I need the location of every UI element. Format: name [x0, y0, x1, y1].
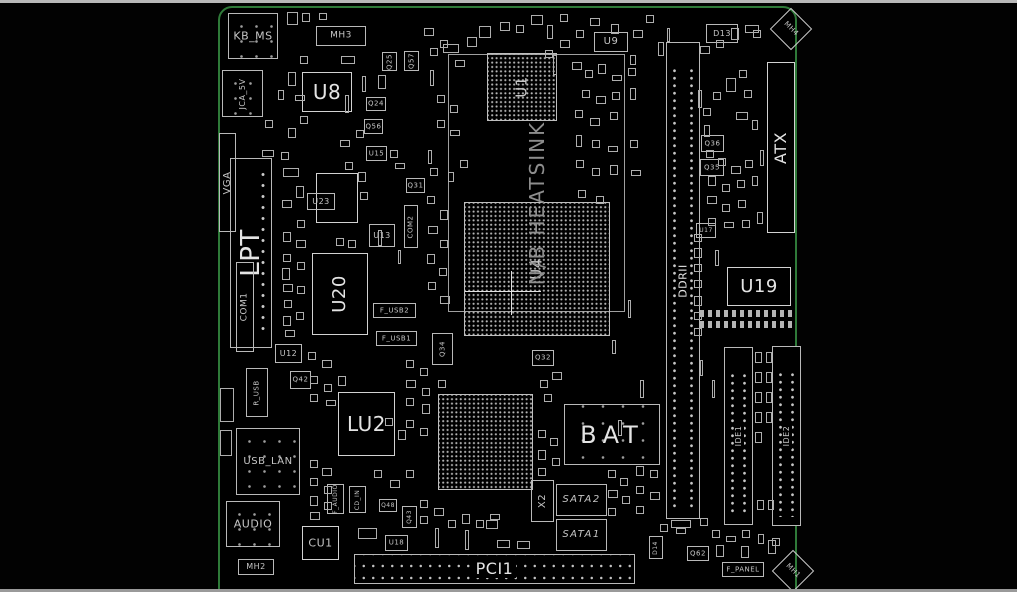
smd-part — [739, 70, 747, 78]
smd-part — [282, 268, 290, 280]
smd-part — [324, 486, 332, 494]
smd-part — [742, 530, 750, 538]
sata2-connector-label: SATA2 — [562, 495, 600, 505]
smd-part — [336, 238, 344, 246]
smd-part — [310, 394, 318, 402]
f-usb1-header: F_USB1 — [376, 331, 417, 346]
atx-connector: ATX — [767, 62, 795, 233]
smd-part — [742, 220, 750, 228]
smd-part — [708, 218, 716, 226]
smd-part — [612, 75, 622, 81]
smd-part — [517, 541, 530, 549]
smd-part — [712, 530, 720, 538]
smd-part — [406, 420, 414, 428]
smd-part — [724, 222, 734, 228]
smd-part — [448, 172, 454, 182]
smd-part — [707, 196, 717, 204]
smd-part — [322, 360, 332, 368]
jca-5v-connector: JCA_5V — [222, 70, 263, 117]
smd-part — [262, 150, 274, 157]
smd-part — [430, 70, 434, 86]
smd-part — [398, 430, 406, 440]
lan-bga — [438, 394, 533, 490]
smd-part — [612, 340, 616, 354]
smd-part — [766, 352, 772, 363]
smd-part — [467, 37, 477, 47]
smd-part — [378, 75, 386, 89]
smd-part — [582, 90, 590, 98]
com2-header-label: COM2 — [408, 215, 415, 238]
smd-part — [726, 536, 736, 542]
smd-part — [300, 116, 308, 124]
q48-label: Q48 — [381, 503, 395, 509]
smd-part — [345, 95, 349, 113]
smd-part — [636, 466, 644, 476]
d14-label: D14 — [653, 541, 659, 555]
smd-part — [385, 418, 393, 426]
smd-part — [427, 254, 435, 264]
smd-part — [628, 300, 631, 318]
smd-part — [296, 186, 304, 198]
smd-part — [700, 46, 710, 54]
smd-part — [439, 268, 447, 276]
f-usb1-header-label: F_USB1 — [382, 335, 411, 342]
d14: D14 — [649, 536, 663, 559]
smd-part — [310, 376, 318, 384]
sata2-connector: SATA2 — [556, 484, 607, 516]
smd-part — [297, 220, 305, 228]
smd-part — [288, 72, 296, 86]
bat-battery-label: BAT — [580, 423, 644, 447]
smd-part — [592, 168, 600, 176]
smd-part — [610, 165, 618, 175]
smd-part — [360, 192, 368, 200]
cu1-chip-label: CU1 — [308, 538, 332, 549]
smd-part — [300, 56, 308, 64]
smd-part — [324, 502, 332, 510]
mh4-mount-label: MH4 — [782, 20, 799, 37]
smd-part — [744, 90, 752, 98]
audio-connector: AUDIO — [226, 501, 280, 547]
smd-part — [296, 240, 306, 248]
smd-part — [590, 18, 600, 26]
q25-label: Q25 — [386, 54, 393, 70]
smd-part — [758, 534, 764, 544]
smd-part — [285, 330, 295, 337]
smd-part — [406, 470, 414, 478]
smd-part — [398, 250, 401, 264]
com1-connector: COM1 — [236, 262, 254, 352]
smd-part — [766, 412, 772, 423]
nb-heatsink-watermark-label: N/B HEATSINK — [527, 120, 547, 284]
smd-part — [297, 262, 305, 270]
smd-part — [395, 163, 405, 169]
smd-part — [287, 12, 298, 25]
smd-part — [712, 380, 715, 398]
smd-part — [538, 450, 546, 460]
u20-chip: U20 — [312, 253, 368, 335]
smd-part — [611, 24, 619, 34]
smd-part — [722, 184, 730, 192]
usb-lan-connector: USB_LAN — [236, 428, 300, 495]
smd-part — [755, 392, 762, 403]
pad-row — [700, 310, 793, 317]
ide1-connector-label: IDE1 — [734, 423, 744, 450]
smd-part — [406, 360, 414, 368]
smd-part — [694, 248, 702, 258]
smd-part — [738, 200, 746, 208]
smd-part — [544, 394, 552, 402]
smd-part — [731, 28, 739, 40]
smd-part — [760, 150, 764, 166]
smd-part — [281, 152, 289, 160]
f-audio-header-label: F_AUDIO — [333, 484, 339, 514]
smd-part — [552, 372, 562, 380]
smd-part — [590, 118, 600, 126]
smd-part — [766, 372, 772, 383]
smd-part — [540, 380, 548, 388]
smd-part — [576, 135, 582, 147]
smd-part — [745, 160, 753, 168]
smd-part — [560, 40, 570, 48]
smd-part — [575, 110, 583, 118]
mh1-mount-label: MH1 — [784, 562, 801, 579]
smd-part — [390, 480, 400, 488]
smd-part — [448, 520, 456, 528]
smd-part — [694, 264, 702, 272]
smd-part — [640, 380, 644, 398]
smd-part — [667, 28, 670, 42]
smd-part — [736, 112, 748, 120]
u19-chip-label: U19 — [740, 278, 778, 296]
u18: U18 — [385, 535, 408, 551]
smd-part — [440, 40, 448, 48]
u18-label: U18 — [389, 540, 405, 547]
f-usb2-header-label: F_USB2 — [380, 307, 409, 314]
smd-part — [428, 226, 438, 234]
lu2-chip-label: LU2 — [347, 414, 386, 434]
q62-label: Q62 — [690, 550, 706, 557]
smd-part — [620, 478, 628, 486]
ide1-connector: IDE1 — [724, 347, 753, 525]
smd-part — [450, 105, 458, 113]
smd-part — [374, 470, 382, 478]
crosshair-line — [465, 291, 541, 292]
smd-part — [500, 22, 510, 31]
smd-part — [430, 168, 438, 176]
f-panel-header-label: F_PANEL — [726, 566, 759, 573]
smd-part — [731, 166, 741, 174]
u15: U15 — [366, 146, 387, 161]
smd-part — [440, 210, 448, 220]
smd-part — [706, 150, 714, 158]
smd-part — [608, 470, 616, 478]
smd-part — [660, 524, 668, 532]
u23: U23 — [307, 193, 335, 210]
smd-part — [630, 55, 636, 65]
smd-part — [694, 234, 702, 242]
smd-part — [768, 500, 774, 510]
q62: Q62 — [687, 546, 709, 561]
smd-part — [283, 168, 299, 177]
smd-part — [282, 200, 292, 208]
smd-part — [755, 352, 762, 363]
smd-part — [550, 438, 558, 446]
smd-part — [737, 180, 745, 188]
smd-part — [434, 508, 444, 516]
smd-part — [497, 540, 510, 548]
smd-part — [694, 296, 702, 306]
mh2-mount-label: MH2 — [246, 563, 266, 571]
smd-part — [362, 76, 366, 92]
u9-label: U9 — [604, 37, 619, 47]
q43-label: Q43 — [407, 510, 413, 524]
q24-label: Q24 — [368, 101, 384, 108]
smd-part — [297, 286, 305, 294]
q36-label: Q36 — [705, 140, 721, 147]
smd-part — [631, 170, 641, 176]
smd-part — [694, 328, 702, 336]
smd-part — [308, 352, 316, 360]
smd-part — [427, 196, 435, 204]
smd-part — [741, 546, 749, 558]
smd-part — [608, 146, 618, 152]
mh3-mount: MH3 — [316, 26, 366, 46]
q34: Q34 — [432, 333, 453, 365]
u23-label: U23 — [312, 198, 330, 206]
smd-part — [283, 232, 291, 242]
smd-part — [576, 30, 584, 38]
smd-part — [700, 518, 708, 526]
x2-header-label: X2 — [538, 494, 548, 508]
cd-in-header: CD_IN — [349, 486, 366, 513]
smd-part — [455, 60, 465, 67]
smd-part — [302, 13, 310, 22]
q34-label: Q34 — [439, 341, 446, 357]
u12: U12 — [275, 344, 302, 363]
nb-heatsink-watermark: N/B HEATSINK — [512, 95, 562, 310]
q31: Q31 — [406, 178, 425, 193]
smd-part — [768, 540, 776, 554]
mh2-mount: MH2 — [238, 559, 274, 575]
smd-part — [596, 196, 604, 204]
q24: Q24 — [366, 97, 386, 111]
smd-part — [278, 90, 284, 100]
smd-part — [578, 190, 586, 198]
smd-part — [630, 88, 636, 100]
smd-part — [755, 412, 762, 423]
smd-part — [516, 25, 524, 33]
smd-part — [753, 30, 761, 38]
smd-part — [622, 496, 630, 504]
smd-part — [420, 516, 428, 524]
smd-part — [288, 128, 296, 138]
smd-part — [553, 55, 557, 75]
q56: Q56 — [364, 119, 383, 134]
ddrii-slot-label: DDRII — [677, 261, 690, 301]
smd-part — [716, 40, 724, 48]
smd-part — [437, 95, 445, 103]
sata1-connector-label: SATA1 — [562, 530, 600, 540]
pad-row — [700, 321, 793, 328]
q48: Q48 — [379, 499, 397, 512]
f-usb2-header: F_USB2 — [373, 303, 416, 318]
smd-part — [722, 204, 730, 212]
smd-part — [592, 140, 600, 148]
cd-in-header-label: CD_IN — [355, 489, 361, 510]
smd-part — [676, 528, 686, 534]
smd-part — [576, 160, 584, 168]
d13-label: D13 — [713, 30, 731, 38]
com1-connector-label: COM1 — [241, 293, 250, 322]
smd-part — [585, 70, 593, 78]
smd-part — [486, 520, 498, 529]
smd-part — [358, 528, 377, 539]
smd-part — [757, 212, 763, 224]
smd-part — [650, 492, 660, 500]
smd-part — [422, 404, 430, 414]
smd-part — [340, 140, 350, 147]
smd-part — [476, 520, 484, 528]
r-usb-header-label: R_USB — [254, 380, 261, 405]
audio-connector-label: AUDIO — [234, 519, 272, 530]
smd-part — [479, 26, 491, 38]
smd-part — [704, 125, 710, 137]
pci1-slot-label: PCI1 — [473, 560, 517, 578]
smd-part — [283, 284, 293, 292]
smd-part — [322, 468, 332, 476]
smd-part — [572, 62, 582, 70]
smd-part — [435, 528, 439, 548]
boardview-diagram: KB_MSMH3JCA_5VU8Q25Q57Q24Q56U15Q31U23U13… — [0, 0, 1017, 592]
smd-part — [356, 130, 364, 138]
ide2-connector-label: IDE2 — [782, 423, 792, 450]
smd-part — [310, 460, 318, 468]
smd-part — [326, 400, 336, 406]
smd-part — [341, 56, 355, 64]
smd-part — [428, 282, 436, 290]
smd-part — [406, 380, 416, 388]
smd-part — [345, 162, 353, 170]
smd-part — [650, 470, 658, 478]
smd-part — [716, 545, 724, 557]
smd-part — [310, 478, 318, 486]
bat-battery: BAT — [564, 404, 660, 465]
u20-chip-label: U20 — [331, 275, 349, 313]
smd-part — [338, 376, 346, 386]
top-border-strip — [0, 0, 1017, 3]
smd-part — [547, 25, 553, 39]
smd-part — [428, 150, 432, 164]
com2-header: COM2 — [404, 205, 418, 248]
smd-part — [612, 92, 620, 100]
q43: Q43 — [402, 506, 417, 528]
smd-part — [608, 508, 616, 516]
cu1-chip: CU1 — [302, 526, 339, 560]
smd-part — [694, 280, 702, 288]
smd-part — [438, 380, 446, 388]
smd-part — [283, 254, 291, 262]
kb-ms-connector: KB_MS — [228, 13, 278, 59]
smd-part — [713, 92, 721, 100]
smd-part — [440, 240, 448, 248]
smd-part — [703, 108, 711, 116]
f-panel-header: F_PANEL — [722, 562, 764, 577]
u13-label: U13 — [373, 232, 391, 240]
q32: Q32 — [532, 350, 554, 366]
smd-part — [646, 15, 654, 23]
pci1-slot: PCI1 — [354, 554, 635, 584]
mh3-mount-label: MH3 — [330, 32, 352, 41]
smd-part — [636, 506, 644, 514]
smd-part — [618, 420, 622, 436]
smd-part — [718, 158, 726, 166]
sata1-connector: SATA1 — [556, 519, 607, 551]
q42: Q42 — [290, 371, 311, 389]
q56-label: Q56 — [366, 123, 382, 130]
smd-part — [296, 312, 304, 320]
smd-part — [422, 388, 430, 396]
smd-part — [608, 490, 618, 498]
smd-part — [319, 13, 327, 20]
smd-part — [538, 468, 546, 476]
smd-part — [450, 130, 460, 136]
smd-part — [596, 96, 606, 104]
smd-part — [610, 112, 618, 120]
smd-part — [295, 95, 305, 101]
r-usb-header: R_USB — [246, 368, 268, 417]
smd-part — [531, 15, 543, 25]
crosshair-line — [511, 271, 512, 315]
kb-ms-connector-label: KB_MS — [233, 31, 272, 42]
smd-part — [324, 384, 332, 392]
smd-part — [420, 428, 428, 436]
smd-part — [752, 120, 758, 130]
q42-label: Q42 — [293, 377, 309, 384]
smd-part — [757, 500, 764, 510]
smd-part — [726, 78, 736, 92]
smd-part — [700, 360, 703, 376]
u13: U13 — [369, 224, 395, 247]
smd-part — [348, 240, 356, 248]
u19-chip: U19 — [727, 267, 791, 306]
smd-part — [310, 496, 318, 506]
smd-part — [440, 296, 450, 304]
smd-part — [220, 388, 234, 422]
smd-part — [633, 30, 643, 38]
smd-part — [220, 430, 232, 456]
smd-part — [715, 250, 719, 266]
u15-label: U15 — [369, 150, 385, 157]
smd-part — [460, 160, 468, 168]
smd-part — [598, 64, 606, 74]
smd-part — [420, 500, 428, 508]
smd-part — [420, 368, 428, 376]
q25: Q25 — [382, 52, 397, 71]
smd-part — [406, 398, 414, 406]
smd-part — [538, 430, 546, 438]
u12-label: U12 — [280, 350, 298, 358]
jca-5v-connector-label: JCA_5V — [239, 78, 247, 109]
smd-part — [310, 512, 320, 520]
smd-part — [437, 120, 445, 128]
x2-header: X2 — [531, 480, 554, 522]
smd-part — [462, 514, 470, 524]
q32-label: Q32 — [535, 355, 551, 362]
usb-lan-connector-label: USB_LAN — [243, 457, 292, 467]
smd-part — [552, 458, 560, 466]
u8-chip-label: U8 — [313, 82, 341, 102]
